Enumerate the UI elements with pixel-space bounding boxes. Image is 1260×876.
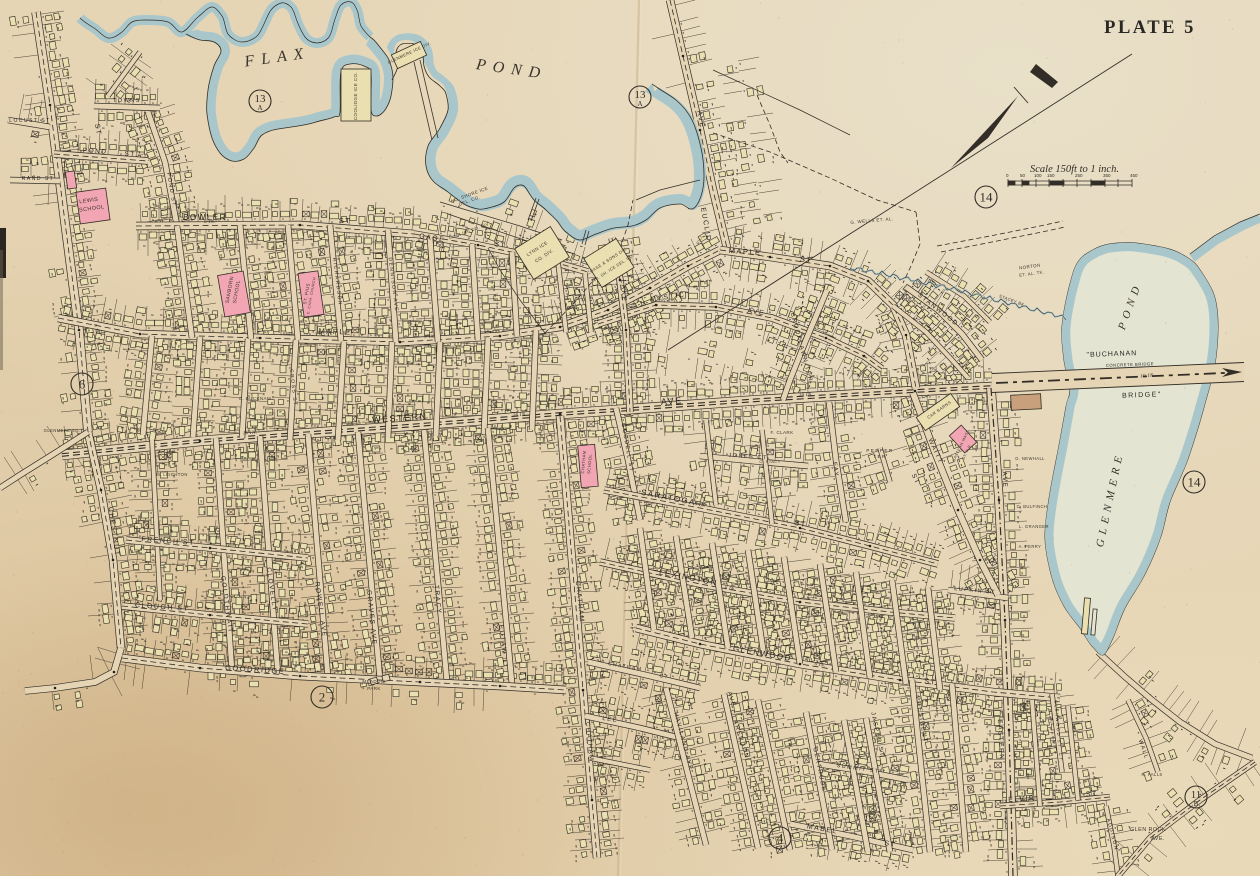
svg-text:B: B [1194, 800, 1199, 808]
svg-text:A: A [637, 100, 642, 108]
svg-text:10 IN.: 10 IN. [799, 393, 814, 399]
svg-text:R. FALLS: R. FALLS [1141, 772, 1162, 777]
svg-text:4: 4 [777, 831, 784, 846]
svg-text:C. BUCKNAM: C. BUCKNAM [239, 396, 271, 401]
svg-text:LAKE: LAKE [619, 279, 627, 302]
svg-text:16 IN.: 16 IN. [243, 431, 258, 437]
svg-text:14: 14 [1188, 475, 1202, 490]
svg-text:PLATE 5: PLATE 5 [1104, 18, 1196, 38]
svg-text:RAND ST: RAND ST [22, 176, 54, 182]
svg-text:PARK: PARK [367, 686, 381, 691]
svg-text:AVE.: AVE. [1151, 836, 1165, 842]
svg-text:ELVIR: ELVIR [1008, 795, 1036, 803]
svg-text:150: 150 [1047, 173, 1055, 178]
svg-text:AVE: AVE [661, 395, 683, 406]
svg-text:6: 6 [79, 377, 86, 392]
svg-text:ST: ST [800, 255, 813, 265]
svg-text:TER: TER [873, 454, 887, 459]
svg-text:GLENMERE SQ.: GLENMERE SQ. [44, 428, 81, 433]
svg-text:250: 250 [1075, 173, 1083, 178]
svg-text:A. PERRY: A. PERRY [1019, 544, 1042, 549]
svg-text:LOCUST ST: LOCUST ST [9, 118, 50, 124]
svg-text:MAPLE: MAPLE [318, 326, 351, 336]
svg-text:M. LEIGHTON: M. LEIGHTON [156, 472, 188, 477]
svg-text:ST: ST [339, 216, 352, 225]
svg-text:A: A [257, 104, 262, 112]
svg-text:50: 50 [1020, 173, 1026, 178]
svg-text:C. BULFINCH: C. BULFINCH [1017, 504, 1048, 509]
svg-text:ST: ST [124, 151, 136, 159]
svg-text:BRIDGE": BRIDGE" [1122, 391, 1162, 399]
svg-text:C. STACY: C. STACY [759, 459, 780, 464]
svg-text:2: 2 [319, 690, 326, 705]
svg-text:350: 350 [1103, 173, 1111, 178]
svg-text:8 IN.: 8 IN. [424, 335, 436, 340]
svg-text:450: 450 [1130, 173, 1138, 178]
svg-text:ST: ST [1086, 791, 1098, 799]
svg-text:BOWLER: BOWLER [183, 213, 227, 222]
svg-text:G. NEWHALL: G. NEWHALL [1015, 456, 1045, 461]
svg-text:L. GRANGER: L. GRANGER [1019, 524, 1049, 529]
svg-text:PEPPER: PEPPER [866, 448, 893, 453]
svg-text:GLEN ROCK: GLEN ROCK [1130, 827, 1166, 833]
svg-text:14: 14 [980, 190, 994, 205]
svg-text:MEADOW: MEADOW [362, 679, 386, 684]
svg-text:100: 100 [1034, 173, 1042, 178]
svg-text:F. CLARK: F. CLARK [771, 430, 794, 435]
svg-text:AVE: AVE [1001, 471, 1009, 488]
svg-text:COOLIDGE ICE CO.: COOLIDGE ICE CO. [353, 72, 358, 120]
svg-text:10 IN: 10 IN [1140, 374, 1154, 380]
svg-text:TOWNS: TOWNS [113, 98, 141, 104]
